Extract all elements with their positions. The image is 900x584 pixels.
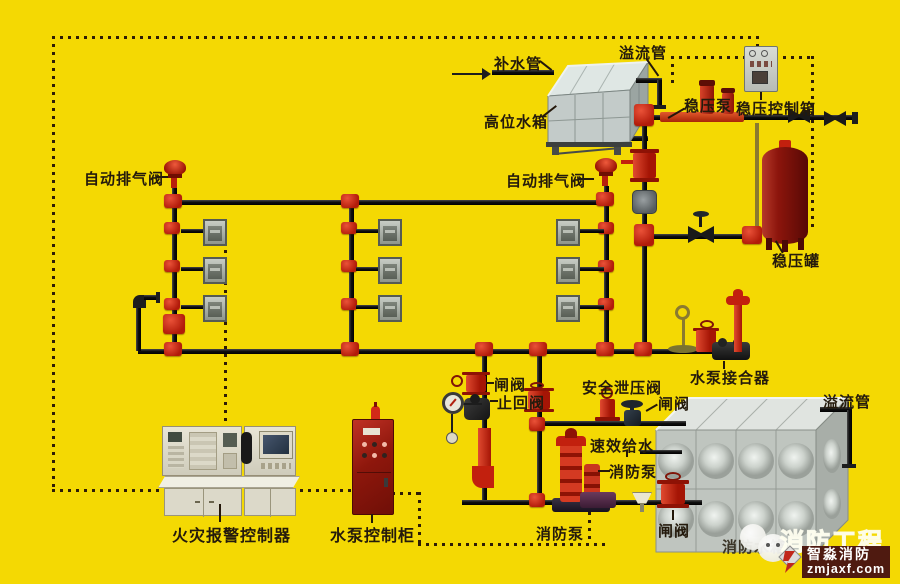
- fire-protection-system-diagram: 补水管 溢流管 高位水箱 稳压泵 稳压控制箱 自动排气阀 自动排气阀 稳压罐 水…: [0, 0, 900, 584]
- valve-wheel: [693, 211, 709, 217]
- coupler-tee-top: [726, 296, 750, 305]
- check-valve-gray: [632, 190, 657, 214]
- pipe-tee: [164, 342, 182, 356]
- brand-logo-icon: [778, 545, 802, 578]
- stabilizer-tank: [758, 138, 814, 254]
- test-valve-base: [668, 345, 698, 353]
- hydrant-box: [203, 295, 227, 322]
- pipe-end-flange: [156, 292, 160, 303]
- label-auto-exhaust-valve-left: 自动排气阀: [84, 168, 164, 189]
- label-overflow-pipe-top: 溢流管: [619, 42, 667, 63]
- fire-pump: [560, 444, 582, 502]
- panel-window: [752, 71, 768, 84]
- high-level-tank: [540, 48, 656, 158]
- pipe-elbow: [472, 466, 494, 488]
- pipe-elbow: [596, 192, 614, 206]
- label-gate-valve-2: 闸阀: [658, 393, 690, 414]
- control-wire-dotted: [300, 489, 352, 492]
- control-wire-dotted: [671, 56, 813, 59]
- pipe-tee: [634, 342, 652, 356]
- pipe-cross: [634, 104, 654, 126]
- pipe-tee: [164, 222, 180, 234]
- test-valve-loop: [675, 305, 690, 320]
- label-auto-exhaust-valve-right: 自动排气阀: [506, 170, 586, 191]
- pipe-tee: [164, 260, 180, 272]
- valve-icon: [824, 111, 846, 126]
- hydrant-box: [203, 219, 227, 246]
- brand-badge: 智淼消防 zmjaxf.com: [778, 545, 890, 578]
- overflow-pipe-bottom: [847, 410, 852, 466]
- test-valve-stem: [682, 318, 685, 348]
- pipe-tee: [164, 298, 180, 310]
- safety-relief-valve: [600, 399, 615, 419]
- label-stabilizer-control-box: 稳压控制箱: [736, 98, 816, 119]
- telephone-handset-icon: [241, 432, 252, 464]
- gauge-icon: [761, 50, 768, 57]
- button-row: [750, 61, 772, 67]
- flow-arrow: [452, 73, 484, 75]
- label-pump-control-cabinet: 水泵控制柜: [330, 522, 415, 546]
- fire-alarm-controller: [156, 420, 302, 518]
- pipe-tee: [341, 342, 359, 356]
- drain-stub: [144, 295, 156, 300]
- hydrant-box: [378, 295, 402, 322]
- pipe-tee: [529, 417, 545, 431]
- gauge-bulb: [446, 432, 458, 444]
- label-high-level-tank: 高位水箱: [484, 111, 548, 132]
- stabilizer-pump-motor: [699, 80, 715, 86]
- pipe-cross: [634, 224, 654, 246]
- overflow-pipe-top: [657, 80, 662, 106]
- control-wire-dotted: [588, 512, 591, 544]
- discharge-pipe: [540, 421, 686, 426]
- hydrant-box: [378, 257, 402, 284]
- gate-valve-dark: [624, 410, 641, 426]
- brand-site: zmjaxf.com: [807, 562, 885, 576]
- control-wire-dotted: [52, 36, 55, 492]
- control-wire-dotted: [52, 489, 166, 492]
- label-water-supply-pipe: 补水管: [494, 53, 542, 74]
- pipe-tee: [529, 342, 547, 356]
- label-pump-coupler: 水泵接合器: [690, 367, 770, 388]
- drain-stub: [136, 303, 141, 351]
- pipe-tee: [341, 260, 357, 272]
- label-stabilizer-pump: 稳压泵: [684, 95, 732, 116]
- valve-stem: [699, 216, 702, 227]
- gate-valve: [661, 484, 685, 504]
- pipe-tee: [341, 298, 357, 310]
- stabilizer-control-box: [744, 46, 778, 92]
- hydrant-box: [203, 257, 227, 284]
- pipe-end-flange: [653, 105, 666, 109]
- control-wire-dotted: [418, 492, 421, 546]
- gauge-icon: [749, 50, 756, 57]
- pipe-end-flange: [842, 464, 856, 468]
- control-wire-dotted: [392, 492, 420, 495]
- flow-arrow-head: [482, 68, 491, 80]
- pump-control-cabinet: [350, 404, 396, 516]
- pump-coupling: [580, 492, 616, 508]
- label-gate-valve-3: 闸阀: [658, 520, 690, 541]
- hydrant-box: [556, 257, 580, 284]
- control-wire-dotted: [52, 36, 758, 39]
- control-wire-dotted: [671, 56, 674, 88]
- label-fire-pump-1: 消防泵: [609, 461, 657, 482]
- pipe-end-flange: [852, 112, 858, 124]
- pipe-tee: [164, 194, 182, 208]
- gate-valve: [633, 153, 656, 178]
- pipe-tee: [529, 493, 545, 507]
- hydrant-box: [556, 219, 580, 246]
- riser-valve: [163, 314, 185, 334]
- label-quick-water-supply: 速效给水: [590, 435, 654, 456]
- label-fire-pump-2: 消防泵: [536, 523, 584, 544]
- pipe-tee: [475, 342, 493, 356]
- label-stabilizer-tank: 稳压罐: [772, 250, 820, 271]
- hydrant-box: [378, 219, 402, 246]
- pipe-tee: [596, 342, 614, 356]
- crt-monitor: [259, 431, 293, 459]
- label-overflow-pipe-bottom: 溢流管: [823, 391, 871, 412]
- brand-name: 智淼消防: [807, 547, 885, 562]
- label-check-valve: 止回阀: [497, 392, 545, 413]
- pipe-tee: [341, 222, 357, 234]
- beacon-icon: [371, 406, 380, 419]
- gate-valve: [466, 375, 486, 392]
- stabilizer-pump-motor: [721, 88, 735, 93]
- hydrant-box: [556, 295, 580, 322]
- coupler-riser: [734, 302, 742, 352]
- pipe-tee: [341, 194, 359, 208]
- valve-icon: [688, 226, 714, 243]
- label-safety-relief-valve: 安全泄压阀: [582, 377, 662, 398]
- top-main-pipe: [173, 200, 610, 205]
- pump-discharge-red: [478, 428, 491, 470]
- valve-handle: [621, 160, 633, 164]
- label-fire-alarm-controller: 火灾报警控制器: [172, 522, 291, 546]
